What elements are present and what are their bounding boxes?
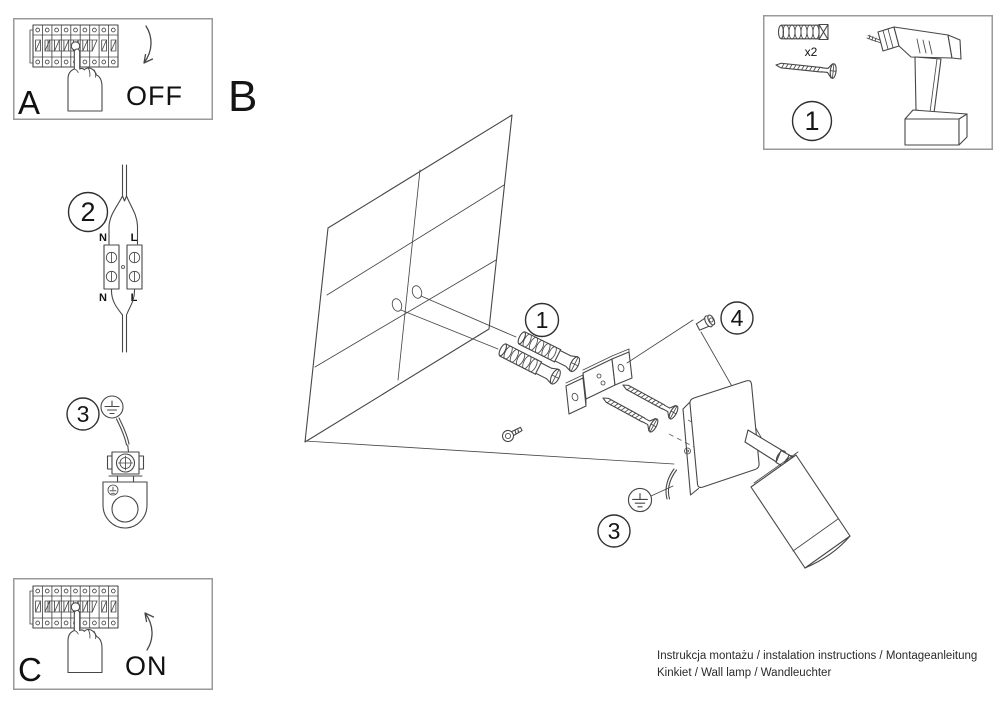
drill-icon [867, 27, 967, 145]
earth-symbol-icon [628, 488, 651, 511]
anchor-quantity-label: x2 [805, 45, 818, 59]
earth-leader [651, 486, 673, 496]
callout-tools-1: 1 [793, 102, 832, 141]
set-screw-icon [695, 313, 716, 332]
callout-step-3: 3 [67, 398, 99, 430]
instruction-sheet: OFF A 2 N L N [0, 0, 1000, 707]
on-label: ON [125, 651, 168, 681]
lamp-base-terminal-icon [103, 452, 147, 528]
mounting-exploded-view: 1 [270, 85, 870, 600]
wall-plug-icon [497, 342, 562, 386]
callout-step-2: 2 [69, 193, 108, 232]
panel-a-label: A [18, 84, 40, 121]
lamp-head [751, 452, 850, 568]
footer-line-2: Kinkiet / Wall lamp / Wandleuchter [657, 665, 977, 682]
svg-text:2: 2 [80, 197, 95, 227]
footer-line-1: Instrukcja montażu / instalation instruc… [657, 648, 977, 665]
wall-lamp-icon [666, 381, 850, 568]
wall-panel [305, 115, 512, 442]
earth-symbol-icon [101, 396, 123, 418]
step-2-wiring-diagram: 2 N L N L [60, 160, 150, 355]
arrow-down-icon [144, 26, 153, 63]
supply-cable-icon [123, 165, 127, 196]
wall-hole [411, 284, 424, 299]
panel-breaker-on: ON C [13, 578, 213, 690]
wire-label-n-top: N [99, 232, 107, 244]
callout-step-3-lamp: 3 [598, 515, 630, 547]
wall-plug-icon [779, 25, 829, 40]
earth-wire-icon [666, 469, 677, 499]
pan-screw-icon [501, 424, 524, 443]
panel-tools: x2 1 [763, 15, 993, 150]
arrow-up-icon [145, 613, 154, 650]
footer-text: Instrukcja montażu / instalation instruc… [657, 648, 977, 682]
terminal-block-icon [104, 245, 142, 289]
svg-text:4: 4 [731, 305, 744, 331]
panel-breaker-off: OFF A [13, 18, 213, 120]
step-3-earth-diagram: 3 [58, 388, 158, 538]
callout-step-1: 1 [526, 304, 559, 337]
callout-step-4: 4 [721, 302, 753, 334]
svg-text:1: 1 [804, 106, 819, 136]
svg-text:3: 3 [608, 518, 621, 544]
earth-wire-icon [117, 418, 130, 452]
svg-text:3: 3 [77, 401, 90, 427]
wire-label-l-top: L [131, 232, 138, 244]
panel-c-label: C [18, 651, 42, 688]
off-label: OFF [126, 81, 183, 111]
step-b-label: B [228, 72, 257, 122]
wire-label-n-bottom: N [99, 292, 107, 304]
svg-text:1: 1 [536, 307, 549, 333]
screw-icon [775, 58, 837, 79]
